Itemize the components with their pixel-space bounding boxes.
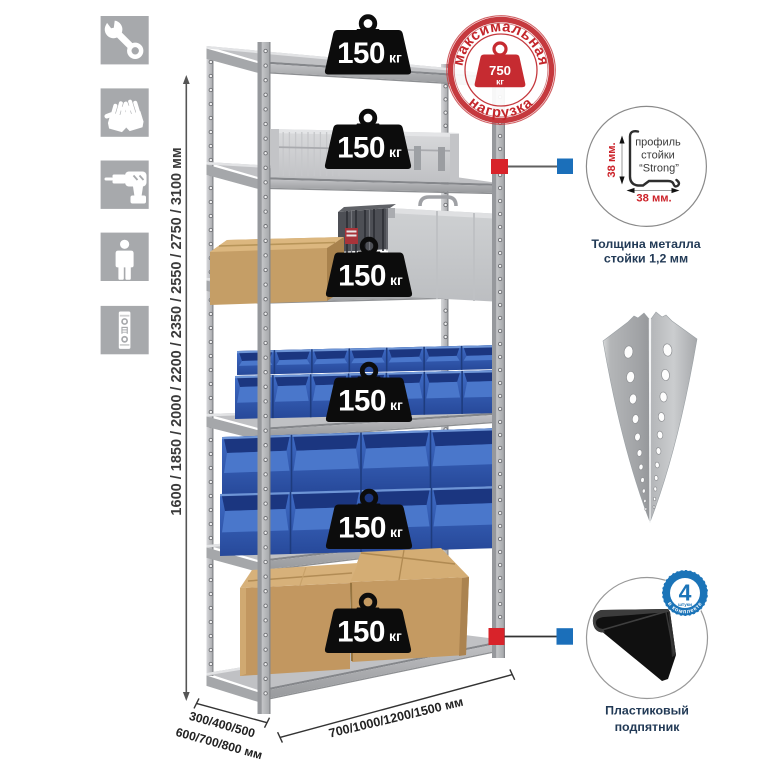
svg-text:стойки 1,2 мм: стойки 1,2 мм bbox=[604, 252, 688, 266]
svg-text:38 мм.: 38 мм. bbox=[606, 142, 618, 177]
svg-text:стойки: стойки bbox=[641, 150, 675, 162]
svg-text:Пластиковый: Пластиковый bbox=[605, 704, 689, 718]
svg-text:1600 / 1850 / 2000 / 2200 / 23: 1600 / 1850 / 2000 / 2200 / 2350 / 2550 … bbox=[169, 147, 185, 515]
svg-text:Толщина металла: Толщина металла bbox=[591, 237, 700, 251]
svg-text:38 мм.: 38 мм. bbox=[636, 193, 671, 205]
svg-text:профиль: профиль bbox=[635, 137, 681, 149]
svg-text:“Strong”: “Strong” bbox=[639, 163, 679, 175]
svg-text:700/1000/1200/1500 мм: 700/1000/1200/1500 мм bbox=[327, 695, 464, 741]
svg-text:подпятник: подпятник bbox=[615, 720, 681, 734]
svg-text:штуки: штуки bbox=[678, 602, 692, 607]
svg-text:кг: кг bbox=[496, 77, 504, 87]
